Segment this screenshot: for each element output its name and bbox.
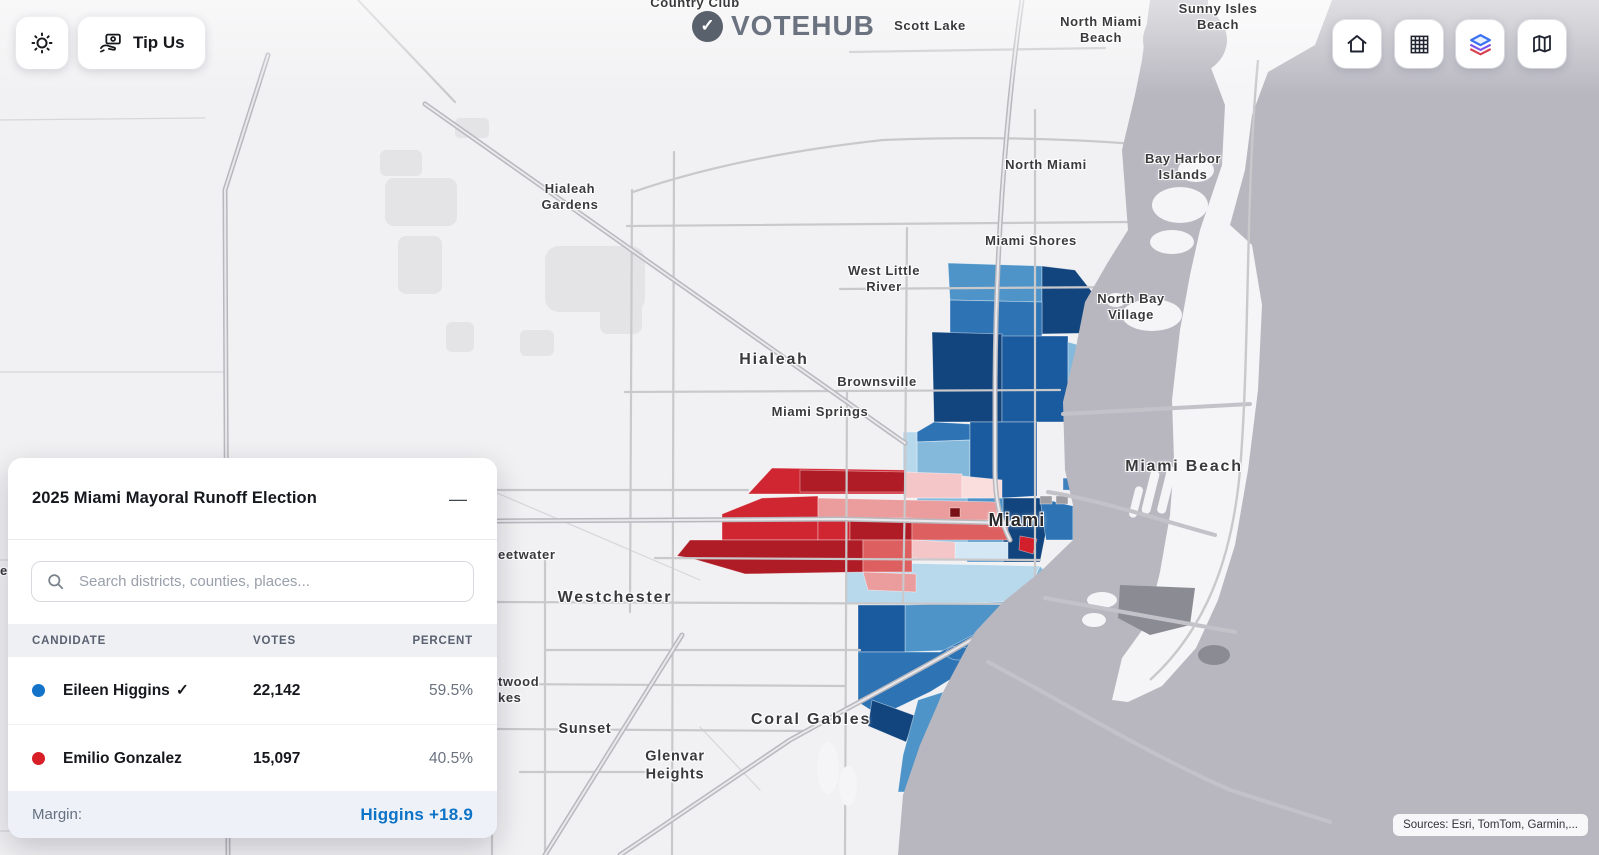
candidate-name: Emilio Gonzalez: [63, 750, 182, 768]
candidate-votes: 15,097: [253, 750, 378, 768]
candidate-row-higgins[interactable]: Eileen Higgins ✓ 22,142 59.5%: [8, 657, 497, 725]
search-box[interactable]: [31, 561, 474, 602]
tip-us-button[interactable]: Tip Us: [78, 17, 205, 69]
election-results-panel: 2025 Miami Mayoral Runoff Election — CAN…: [8, 458, 497, 838]
grid-view-button[interactable]: [1395, 20, 1443, 68]
margin-label: Margin:: [32, 806, 82, 823]
search-section: [8, 540, 497, 624]
candidate-row-gonzalez[interactable]: Emilio Gonzalez 15,097 40.5%: [8, 725, 497, 793]
sun-icon: [29, 30, 55, 56]
gonzalez-party-dot: [32, 752, 45, 765]
search-icon: [46, 572, 65, 591]
check-circle-icon: ✓: [692, 11, 723, 42]
votehub-logo-text: VOTEHUB: [731, 10, 875, 42]
column-votes: VOTES: [253, 635, 378, 647]
map-icon: [1530, 32, 1554, 56]
candidate-percent: 59.5%: [378, 682, 473, 700]
basemap-button[interactable]: [1518, 20, 1566, 68]
layers-icon: [1468, 32, 1493, 57]
column-candidate: CANDIDATE: [32, 635, 253, 647]
candidate-name: Eileen Higgins: [63, 682, 170, 700]
panel-header: 2025 Miami Mayoral Runoff Election —: [8, 458, 497, 540]
search-input[interactable]: [77, 572, 459, 591]
votehub-app: Country Club Scott Lake North Miami Beac…: [0, 0, 1599, 855]
panel-title: 2025 Miami Mayoral Runoff Election: [32, 489, 317, 508]
theme-toggle-button[interactable]: [16, 17, 68, 69]
candidate-percent: 40.5%: [378, 750, 473, 768]
higgins-party-dot: [32, 684, 45, 697]
results-table-header: CANDIDATE VOTES PERCENT: [8, 624, 497, 657]
margin-value: Higgins +18.9: [360, 805, 473, 825]
home-button[interactable]: [1333, 20, 1381, 68]
tip-us-label: Tip Us: [133, 33, 185, 53]
candidate-votes: 22,142: [253, 682, 378, 700]
votehub-logo: ✓ VOTEHUB: [692, 10, 875, 42]
collapse-panel-button[interactable]: —: [443, 486, 473, 512]
home-icon: [1345, 32, 1369, 56]
map-attribution: Sources: Esri, TomTom, Garmin,...: [1393, 814, 1588, 836]
winner-check-icon: ✓: [176, 681, 189, 700]
margin-footer: Margin: Higgins +18.9: [8, 791, 497, 838]
layers-button[interactable]: [1456, 20, 1504, 68]
grid-icon: [1408, 33, 1431, 56]
column-percent: PERCENT: [378, 635, 473, 647]
hand-money-icon: [98, 31, 123, 56]
